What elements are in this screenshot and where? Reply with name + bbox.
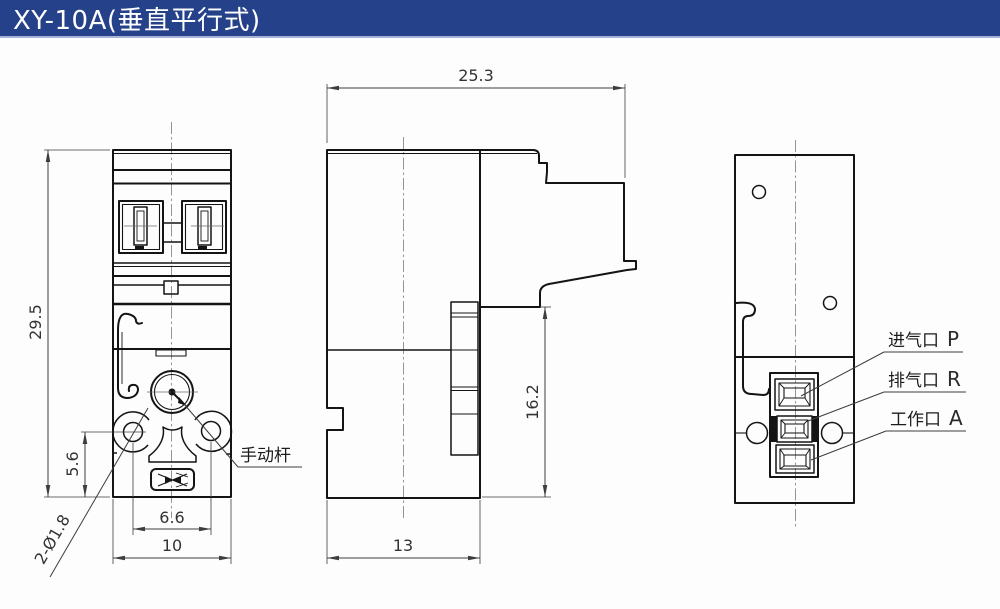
rear-clip <box>736 303 769 395</box>
side-hole-left <box>747 423 768 444</box>
front-view-dimensions: 29.5 5.6 6.6 10 2-Ø1.8 <box>26 150 231 577</box>
side-view <box>327 137 636 520</box>
port-labels: 进气口P 排气口R 工作口A <box>801 327 966 460</box>
mount-hole-right <box>202 422 221 441</box>
rear-hole-top <box>753 186 766 199</box>
technical-drawing: 手动杆 29.5 5.6 6.6 10 2-Ø1.8 <box>0 0 1000 609</box>
port-block-side <box>451 302 478 455</box>
page: XY-10A(垂直平行式) <box>0 0 1000 609</box>
side-view-dimensions: 25.3 16.2 13 <box>327 66 625 564</box>
front-clip <box>118 314 142 398</box>
exhaust-symbol <box>151 469 194 490</box>
dim-13: 13 <box>393 536 413 555</box>
port-p <box>775 379 814 410</box>
title-bar: XY-10A(垂直平行式) <box>0 0 1000 38</box>
dim-5-6: 5.6 <box>63 451 82 476</box>
page-title: XY-10A(垂直平行式) <box>0 0 261 37</box>
label-port-r: 排气口R <box>888 367 961 391</box>
dim-29-5: 29.5 <box>26 304 45 340</box>
front-view: 手动杆 <box>113 122 302 518</box>
dim-25-3: 25.3 <box>458 66 494 85</box>
port-a <box>776 445 814 473</box>
manual-lever-knob <box>147 371 198 413</box>
dim-2-d1-8: 2-Ø1.8 <box>31 511 74 567</box>
dim-6-6: 6.6 <box>159 508 184 527</box>
side-hole-right <box>822 423 843 444</box>
label-port-a: 工作口A <box>890 406 963 430</box>
rear-hole-mid <box>824 297 837 310</box>
port-view <box>735 140 854 528</box>
label-port-p: 进气口P <box>888 327 959 351</box>
manual-lever-text: 手动杆 <box>240 446 291 466</box>
dim-10: 10 <box>162 536 182 555</box>
dim-16-2: 16.2 <box>523 384 542 420</box>
solenoid-connector-outline <box>480 150 636 307</box>
